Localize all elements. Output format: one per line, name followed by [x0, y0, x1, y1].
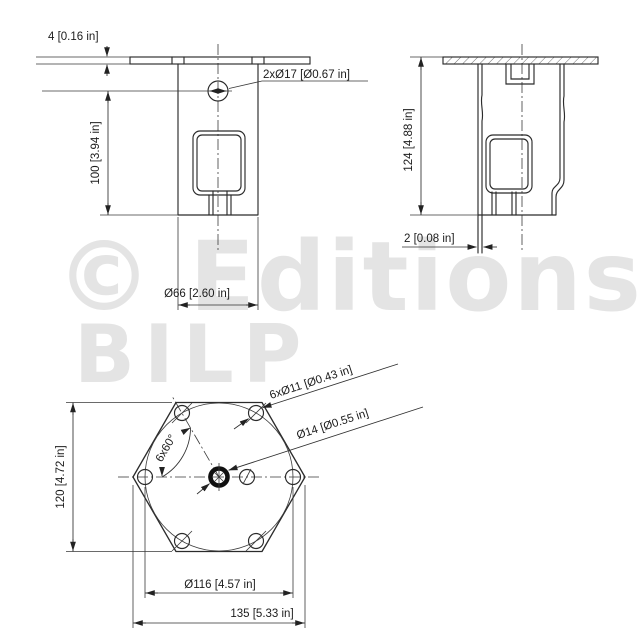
- front-holes-leader: [229, 81, 368, 89]
- side-right-wall-inner: [552, 64, 560, 215]
- side-height-dim: 124 [4.88 in]: [403, 108, 415, 171]
- side-notch: [506, 64, 534, 84]
- bottom-60deg-centerline: [172, 396, 219, 477]
- front-top-holes-dim: 2xØ17 [Ø0.67 in]: [263, 69, 350, 81]
- offset-hole-mark: [243, 469, 251, 484]
- technical-drawing-page: © Editions BILP 4 [0.16 in] 100 [3.94 in…: [0, 0, 640, 640]
- side-dim124-extension-lines: [410, 57, 478, 215]
- watermark-line2: BILP: [74, 308, 310, 401]
- bolt-circle-dim: Ø116 [4.57 in]: [184, 579, 255, 591]
- angle-arrow-top: [184, 428, 190, 432]
- front-body-width-dim: Ø66 [2.60 in]: [164, 288, 230, 300]
- front-pocket-outer: [193, 131, 245, 195]
- front-dim4-extension-lines: [36, 57, 130, 64]
- side-pocket-outer: [486, 135, 532, 193]
- side-left-wall-inner: [481, 64, 482, 253]
- center-hole-leader-stub: [197, 484, 210, 494]
- front-flange: [130, 57, 310, 64]
- corner-holes-leader-stub: [234, 419, 249, 429]
- bottom-view: 6x60° 6xØ11 [Ø0.43 in] Ø14 [Ø0.55 in] 12…: [55, 364, 423, 628]
- side-slot: [492, 192, 516, 215]
- across-corners-dim: 135 [5.33 in]: [230, 608, 293, 620]
- across-flats-dim: 120 [4.72 in]: [55, 445, 67, 508]
- technical-drawing-canvas: © Editions BILP 4 [0.16 in] 100 [3.94 in…: [0, 0, 640, 640]
- side-flange-section: [443, 57, 598, 64]
- front-height-dim: 100 [3.94 in]: [90, 121, 102, 184]
- hole-angle-dim: 6x60°: [154, 433, 179, 465]
- dim135-extension-lines: [133, 485, 305, 628]
- front-flange-thickness-dim: 4 [0.16 in]: [48, 31, 99, 43]
- front-pocket-inner: [197, 135, 241, 191]
- side-wall-thickness-dim: 2 [0.08 in]: [404, 233, 455, 245]
- center-hole-leader: [229, 407, 423, 470]
